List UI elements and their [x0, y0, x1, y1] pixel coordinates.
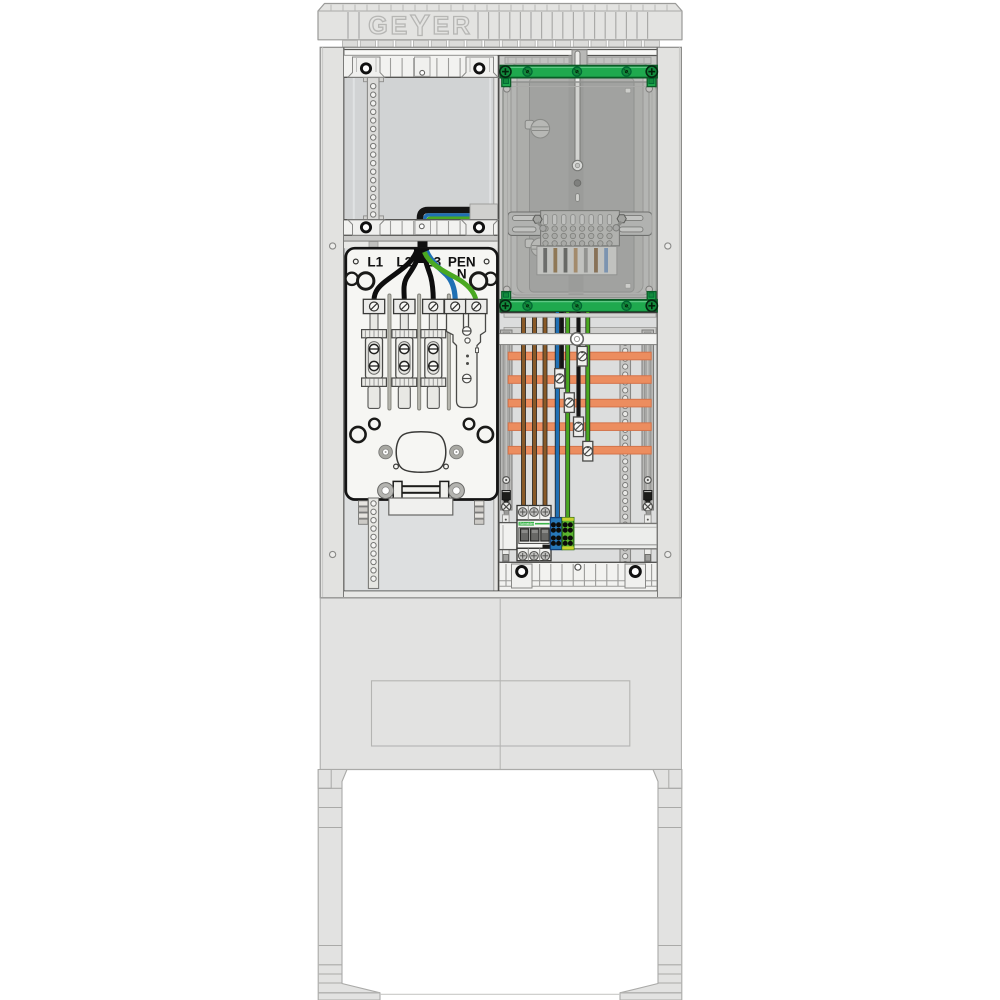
svg-text:Schneider: Schneider — [520, 522, 535, 526]
svg-text:E: E — [433, 12, 450, 40]
svg-text:G: G — [368, 12, 387, 40]
svg-text:L1: L1 — [367, 255, 383, 270]
svg-text:Y: Y — [410, 9, 430, 42]
svg-text:R: R — [452, 12, 470, 40]
svg-text:E: E — [391, 12, 408, 40]
